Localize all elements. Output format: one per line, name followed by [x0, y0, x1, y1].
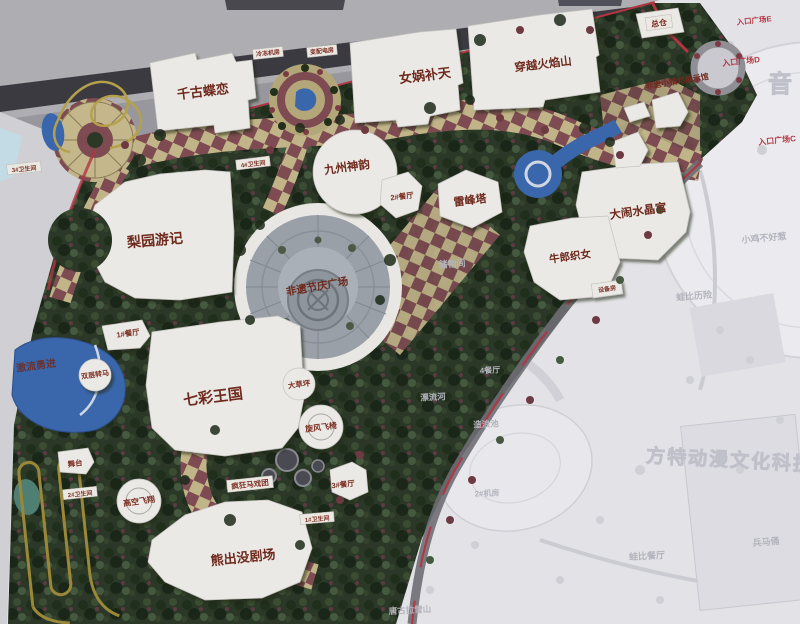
park-map-photo: 音 方特动漫文化科技 — [0, 0, 800, 624]
top-dark-panel — [225, 0, 345, 10]
garden-circle — [269, 64, 341, 136]
entrance-gate-ring — [694, 41, 742, 95]
map-canvas: 音 方特动漫文化科技 — [0, 0, 800, 624]
watermark-corner-char: 音 — [768, 70, 794, 98]
label-restaurant4: 4餐厅 — [480, 364, 501, 375]
label-lazy-river: 漂流河 — [420, 391, 446, 402]
label-machine-room2: 2#机房 — [474, 487, 499, 498]
top-dark-panel — [558, 0, 622, 6]
building-qicaiwangguo — [146, 316, 304, 456]
label-storage: 储物间 — [438, 257, 466, 269]
label-wave-pool: 造浪池 — [473, 418, 499, 429]
mosaic-circle-plaza — [53, 98, 137, 182]
liyuan-courtyard — [48, 208, 112, 272]
label-wabi-restaurant: 蛙比餐厅 — [629, 549, 666, 562]
